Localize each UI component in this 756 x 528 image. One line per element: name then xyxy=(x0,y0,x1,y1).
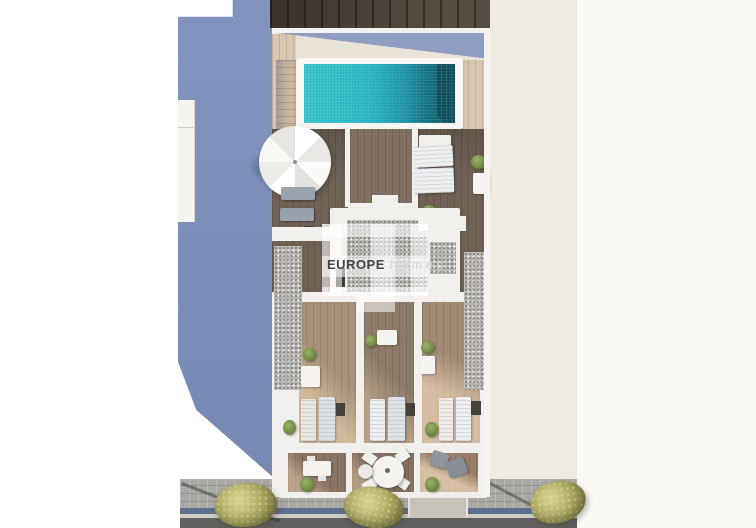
potted-plant xyxy=(283,420,296,435)
gravel-planter-left xyxy=(274,246,302,390)
bistro-table xyxy=(420,356,435,374)
terrace-chair xyxy=(307,456,315,461)
deck-wall-left xyxy=(345,129,350,207)
watermark-brand-secondary: homes xyxy=(390,257,447,272)
terrace-divider xyxy=(414,447,420,494)
terrace-divider xyxy=(346,447,352,494)
potted-plant xyxy=(421,341,434,354)
background-far-right xyxy=(577,0,756,528)
background-right-cream xyxy=(490,0,577,481)
roof-deck-light-section xyxy=(350,129,412,203)
parasol-pole xyxy=(293,160,297,164)
terrace-table xyxy=(303,461,331,476)
side-table-dark xyxy=(336,403,345,416)
table-decor xyxy=(385,468,390,473)
sun-lounger xyxy=(439,398,453,441)
building-right-wall xyxy=(484,28,490,497)
watermark-brand: EUROPEhomes xyxy=(327,256,446,274)
basket xyxy=(358,464,373,479)
potted-plant xyxy=(425,422,438,437)
watermark-brand-primary: EUROPE xyxy=(327,257,385,272)
sun-lounger xyxy=(370,399,385,441)
building-cast-shadow xyxy=(178,0,274,480)
pool-deep-end-steps xyxy=(436,64,455,123)
stairwell-arm xyxy=(372,195,398,210)
sun-lounger xyxy=(388,397,405,441)
side-table-dark xyxy=(471,401,481,415)
sun-lounger xyxy=(413,145,453,168)
gravel-planter-right xyxy=(464,252,484,390)
potted-plant xyxy=(303,348,316,361)
watermark-logo-bar xyxy=(357,296,395,312)
sun-lounger xyxy=(319,397,335,441)
room-divider-wall xyxy=(356,298,364,445)
bistro-table xyxy=(377,330,397,345)
aerial-render: EUROPEhomes xyxy=(0,0,756,528)
sun-lounger xyxy=(456,397,471,441)
potted-plant xyxy=(365,335,377,347)
potted-plant xyxy=(425,477,439,492)
pergola-roof xyxy=(270,0,490,28)
gray-lounger xyxy=(280,208,314,221)
bistro-table xyxy=(301,366,320,387)
potted-plant xyxy=(300,477,314,492)
terrace-chair xyxy=(318,476,326,481)
neighbour-roof-element xyxy=(178,100,195,222)
terrace-top-rail xyxy=(283,443,487,453)
swimming-pool xyxy=(304,64,455,123)
sun-lounger xyxy=(414,167,455,193)
sun-lounger xyxy=(301,399,316,441)
side-table-dark xyxy=(406,403,415,416)
terrace-wall-outer xyxy=(280,447,288,496)
neighbour-roof-line xyxy=(178,127,194,128)
gray-lounger xyxy=(281,187,315,200)
